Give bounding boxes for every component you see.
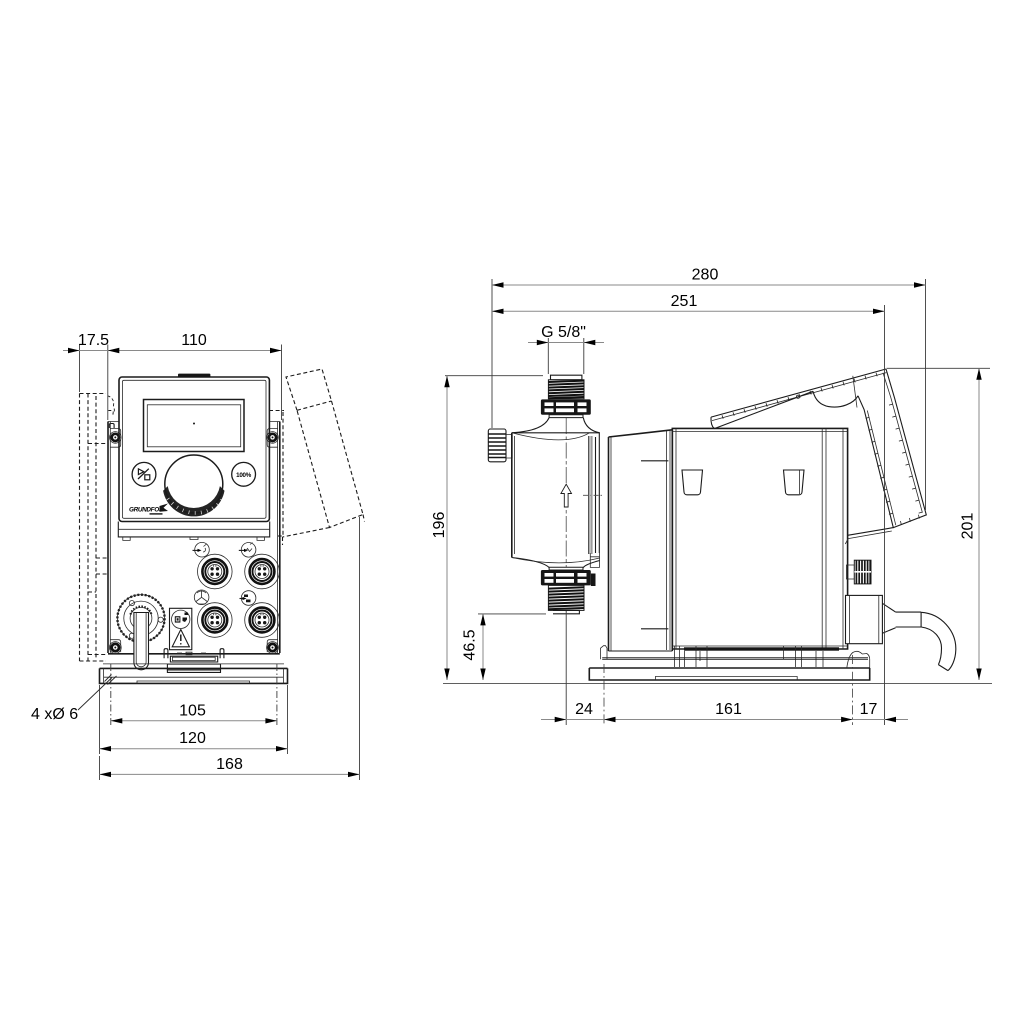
svg-text:251: 251 bbox=[671, 293, 698, 310]
svg-text:201: 201 bbox=[960, 513, 977, 540]
svg-text:105: 105 bbox=[179, 702, 206, 719]
svg-text:280: 280 bbox=[692, 267, 719, 284]
svg-text:100%: 100% bbox=[236, 472, 252, 479]
svg-text:120: 120 bbox=[179, 730, 206, 747]
svg-text:GRUNDFOS: GRUNDFOS bbox=[129, 507, 164, 514]
svg-text:161: 161 bbox=[715, 701, 742, 718]
svg-text:46.5: 46.5 bbox=[462, 629, 479, 660]
svg-text:24: 24 bbox=[575, 701, 593, 718]
svg-text:4 xØ 6: 4 xØ 6 bbox=[31, 706, 78, 723]
svg-text:17: 17 bbox=[860, 701, 878, 718]
svg-text:196: 196 bbox=[431, 512, 448, 539]
svg-text:G 5/8": G 5/8" bbox=[541, 324, 586, 341]
svg-text:17.5: 17.5 bbox=[78, 332, 109, 349]
svg-text:168: 168 bbox=[216, 756, 243, 773]
svg-text:110: 110 bbox=[181, 332, 207, 349]
